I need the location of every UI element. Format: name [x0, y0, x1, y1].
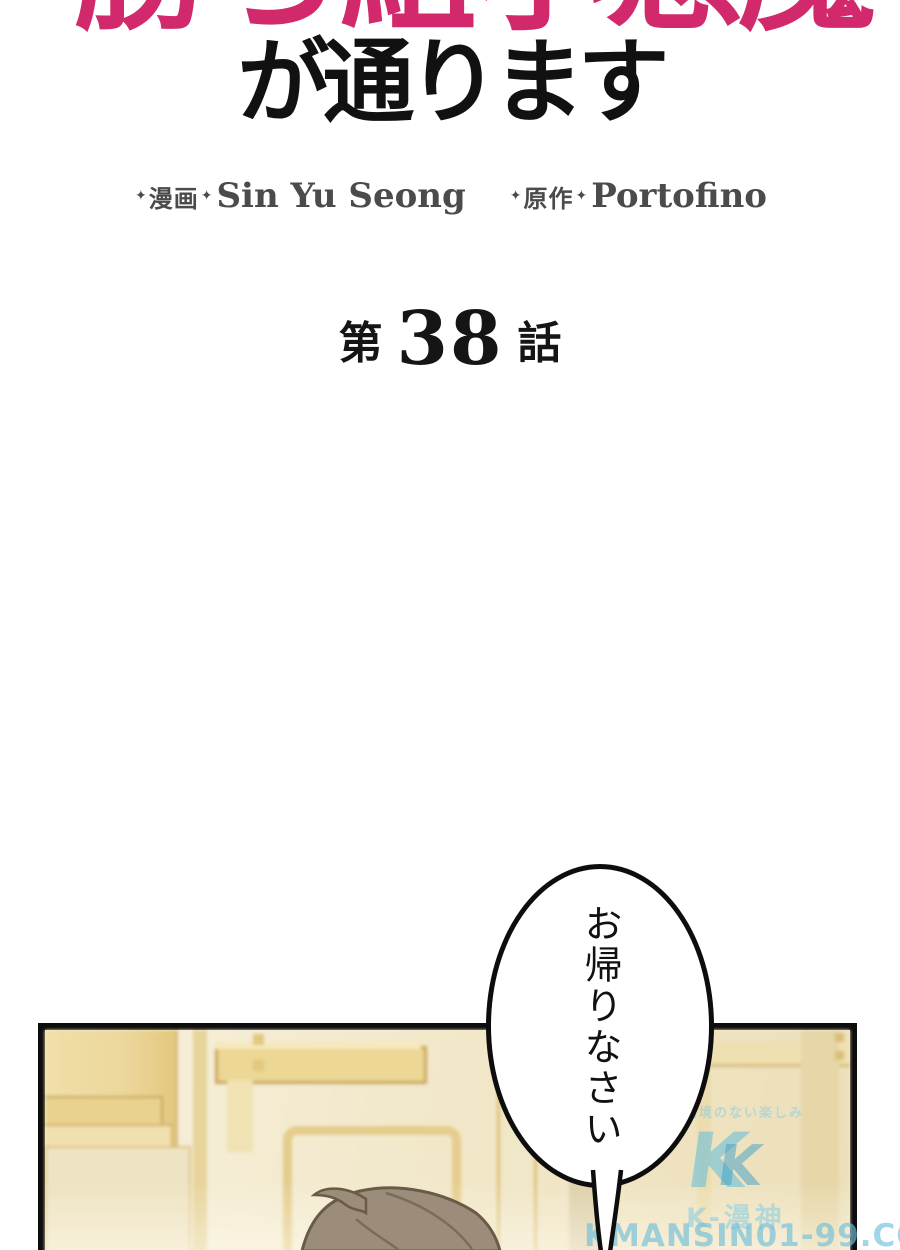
gold-beam-highlight — [215, 1042, 421, 1049]
art-author-name: Sin Yu Seong — [216, 176, 465, 216]
gold-stud-icon — [835, 1033, 844, 1042]
gold-stud-icon — [835, 1051, 844, 1060]
title-line2: が通ります — [0, 34, 900, 131]
credits: ✦ 漫画 ✦ Sin Yu Seong ✦ 原作 ✦ Portofino — [0, 176, 900, 216]
episode-number: 38 — [397, 296, 504, 382]
art-role-label: 漫画 — [149, 179, 199, 214]
beam-support-shape — [227, 1080, 253, 1152]
watermark-site-url: KMANSIN01-99.COM — [584, 1218, 900, 1250]
bubble-tail-svg — [585, 1168, 629, 1250]
episode-suffix: 話 — [517, 307, 561, 371]
diamond-icon: ✦ — [135, 188, 147, 204]
episode-heading: 第 38 話 — [0, 296, 900, 382]
hair-svg — [296, 1185, 508, 1250]
diamond-icon: ✦ — [201, 188, 213, 204]
original-author-name: Portofino — [591, 176, 767, 216]
diamond-icon: ✦ — [575, 188, 587, 204]
diamond-icon: ✦ — [510, 188, 522, 204]
watermark-logo: K K — [688, 1116, 788, 1202]
original-role-label: 原作 — [523, 179, 573, 214]
gold-beam-shape — [215, 1046, 427, 1084]
episode-prefix: 第 — [339, 307, 383, 371]
manga-page: 勝ち組小悪魔 が通ります ✦ 漫画 ✦ Sin Yu Seong ✦ 原作 ✦ … — [0, 0, 900, 1250]
gold-stud-icon — [253, 1034, 264, 1045]
speech-bubble-text: お帰りなさい — [576, 904, 624, 1164]
speech-bubble-tail — [585, 1168, 629, 1250]
character-hair-illustration — [296, 1185, 508, 1250]
logo-k-icon: K — [713, 1134, 766, 1199]
gold-stud-icon — [253, 1060, 264, 1071]
